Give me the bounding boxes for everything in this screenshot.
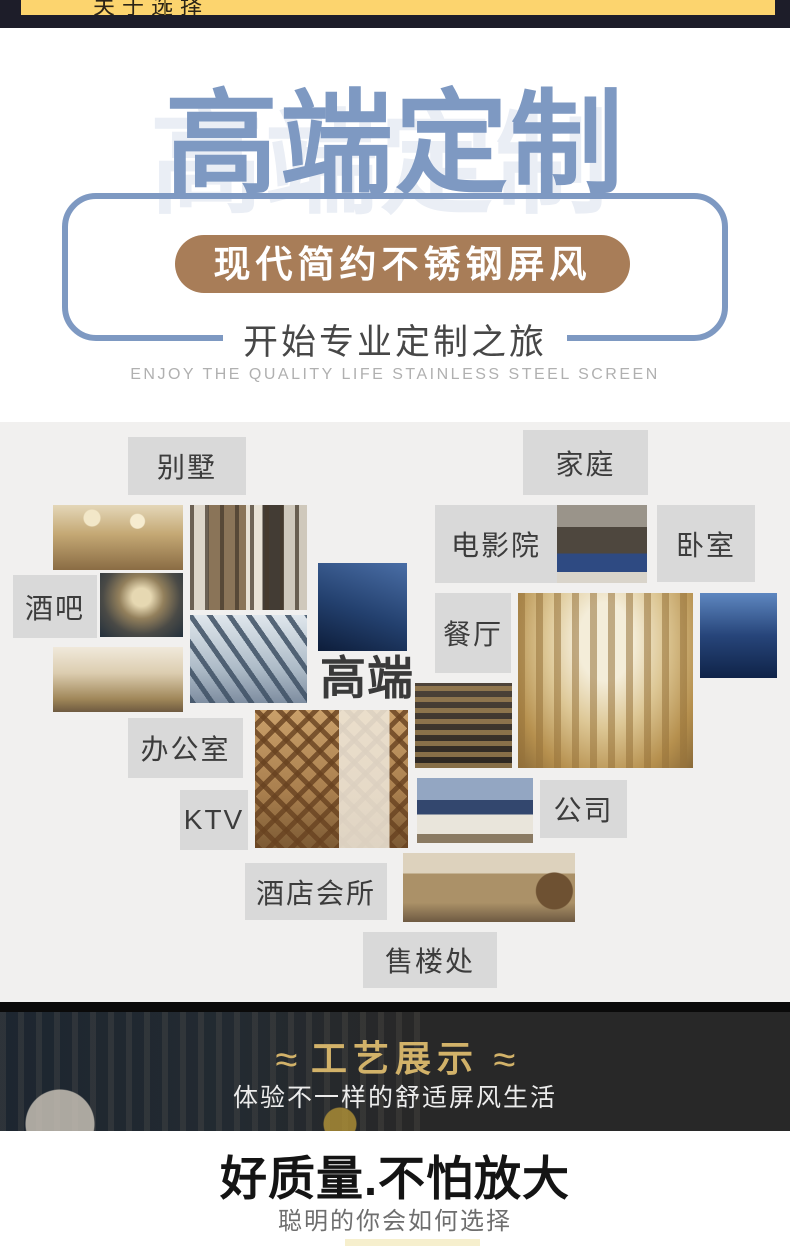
scene-label-sales-office: 售楼处 xyxy=(363,932,497,988)
hero-title-block: 高端定制 高端定制 xyxy=(0,52,790,192)
hero-subtitle-row: 开始专业定制之旅 xyxy=(0,314,790,365)
scene-label-hotel-club: 酒店会所 xyxy=(245,863,387,920)
scene-label-bedroom: 卧室 xyxy=(657,505,755,582)
craft-top-divider xyxy=(0,1002,790,1012)
photo-night-hotel-tower xyxy=(700,593,777,678)
photo-cinema-room xyxy=(557,505,647,583)
scene-label-bar: 酒吧 xyxy=(13,575,97,638)
bottom-partial-graphic xyxy=(345,1239,480,1246)
scene-label-ktv: KTV xyxy=(180,790,248,850)
scenes-collage: 别墅 家庭 电影院 卧室 酒吧 餐厅 办公室 KTV 公司 酒店会所 售楼处 高… xyxy=(0,422,790,1002)
hero-tagline-en: ENJOY THE QUALITY LIFE STAINLESS STEEL S… xyxy=(0,366,790,384)
promo-page: 关于选择 高端定制 高端定制 现代简约不锈钢屏风 开始专业定制之旅 ENJOY … xyxy=(0,0,790,1246)
photo-lobby-reception xyxy=(403,853,575,922)
top-nav-tab-label[interactable]: 关于选择 xyxy=(93,0,209,15)
photo-marble-lobby xyxy=(53,647,183,712)
scene-label-dining-room: 餐厅 xyxy=(435,593,511,673)
hero-product-badge: 现代简约不锈钢屏风 xyxy=(175,235,630,293)
scene-center-text: 高端 xyxy=(320,642,414,708)
photo-gold-round-screen xyxy=(518,593,693,768)
craft-band: ≈工艺展示≈ 体验不一样的舒适屏风生活 xyxy=(0,1002,790,1131)
scene-label-family: 家庭 xyxy=(523,430,648,495)
photo-dome-hall xyxy=(100,573,183,637)
quality-headline: 好质量.不怕放大 xyxy=(0,1140,790,1209)
photo-wood-lattice-room xyxy=(255,710,408,848)
scene-label-cinema: 电影院 xyxy=(435,505,557,583)
top-nav-tabstrip[interactable]: 关于选择 xyxy=(21,0,775,15)
hero-subtitle: 开始专业定制之旅 xyxy=(223,314,567,365)
top-nav-divider xyxy=(164,0,166,15)
top-nav-bar: 关于选择 xyxy=(0,0,790,28)
craft-title: 工艺展示 xyxy=(311,1038,479,1079)
photo-blue-bedroom xyxy=(417,778,533,843)
flourish-right-icon: ≈ xyxy=(479,1038,529,1082)
quality-subline: 聪明的你会如何选择 xyxy=(0,1201,790,1236)
photo-night-building xyxy=(318,563,407,651)
scene-label-company: 公司 xyxy=(540,780,627,838)
craft-subtitle: 体验不一样的舒适屏风生活 xyxy=(0,1078,790,1114)
flourish-left-icon: ≈ xyxy=(261,1038,311,1082)
photo-gold-lobby xyxy=(53,505,183,570)
hero-title: 高端定制 xyxy=(165,52,625,216)
craft-title-row: ≈工艺展示≈ xyxy=(0,1030,790,1083)
photo-hallway-screen xyxy=(190,505,307,610)
scene-label-office: 办公室 xyxy=(128,718,243,778)
scene-label-villa: 别墅 xyxy=(128,437,246,495)
photo-mosaic-screen xyxy=(415,683,512,768)
photo-lattice-structure xyxy=(190,615,307,703)
